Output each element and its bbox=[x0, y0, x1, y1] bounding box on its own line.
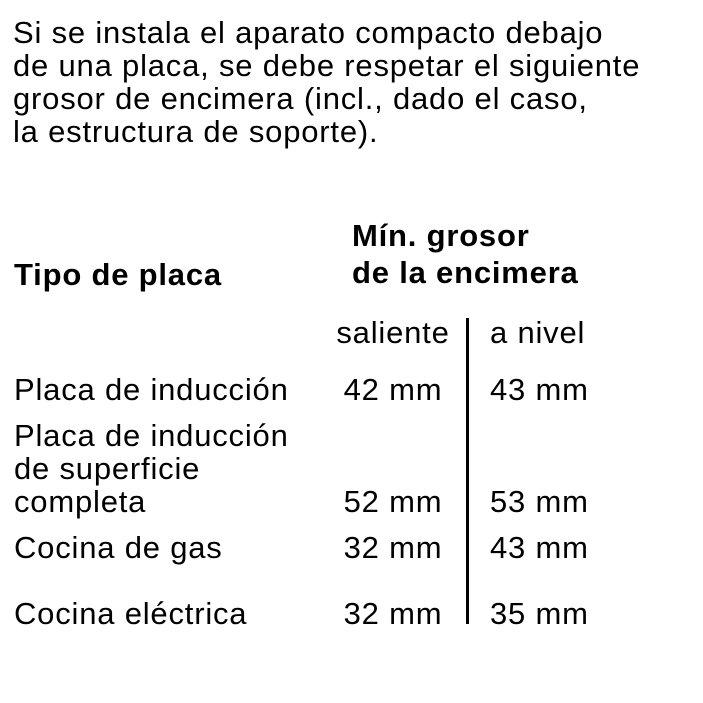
table-row-label-cocina-electrica: Cocina eléctrica bbox=[14, 597, 247, 630]
table-row-label-placa-induccion-superficie-completa: Placa de inducción de superficie complet… bbox=[14, 419, 289, 518]
row-label-line: Cocina de gas bbox=[14, 531, 223, 564]
column-divider-line bbox=[466, 318, 469, 624]
table-header-tipo-de-placa: Tipo de placa bbox=[14, 258, 222, 291]
manual-page: Si se instala el aparato compacto debajo… bbox=[0, 0, 703, 703]
table-cell-a-nivel-cocina-de-gas: 43 mm bbox=[490, 531, 589, 564]
table-cell-saliente-cocina-electrica: 32 mm bbox=[327, 597, 459, 630]
subheader-saliente: saliente bbox=[327, 316, 459, 349]
table-cell-saliente-placa-induccion-superficie: 52 mm bbox=[327, 485, 459, 518]
row-label-line: completa bbox=[14, 485, 289, 518]
table-row-label-placa-induccion: Placa de inducción bbox=[14, 373, 289, 406]
table-cell-a-nivel-cocina-electrica: 35 mm bbox=[490, 597, 589, 630]
intro-paragraph-line-2: de una placa, se debe respetar el siguie… bbox=[13, 49, 640, 82]
table-row-label-cocina-de-gas: Cocina de gas bbox=[14, 531, 223, 564]
subheader-a-nivel: a nivel bbox=[490, 316, 585, 349]
table-cell-saliente-cocina-de-gas: 32 mm bbox=[327, 531, 459, 564]
row-label-line: Placa de inducción bbox=[14, 419, 289, 452]
row-label-line: de superficie bbox=[14, 452, 289, 485]
table-cell-saliente-placa-induccion: 42 mm bbox=[327, 373, 459, 406]
table-header-min-grosor: Mín. grosor de la encimera bbox=[352, 217, 579, 291]
table-header-min-grosor-line-2: de la encimera bbox=[352, 254, 579, 291]
row-label-line: Cocina eléctrica bbox=[14, 597, 247, 630]
table-cell-a-nivel-placa-induccion: 43 mm bbox=[490, 373, 589, 406]
row-label-line: Placa de inducción bbox=[14, 373, 289, 406]
table-cell-a-nivel-placa-induccion-superficie: 53 mm bbox=[490, 485, 589, 518]
intro-paragraph-line-4: la estructura de soporte). bbox=[13, 115, 640, 148]
table-header-min-grosor-line-1: Mín. grosor bbox=[352, 217, 579, 254]
intro-paragraph-line-1: Si se instala el aparato compacto debajo bbox=[13, 16, 640, 49]
intro-paragraph: Si se instala el aparato compacto debajo… bbox=[13, 16, 640, 148]
intro-paragraph-line-3: grosor de encimera (incl., dado el caso, bbox=[13, 82, 640, 115]
